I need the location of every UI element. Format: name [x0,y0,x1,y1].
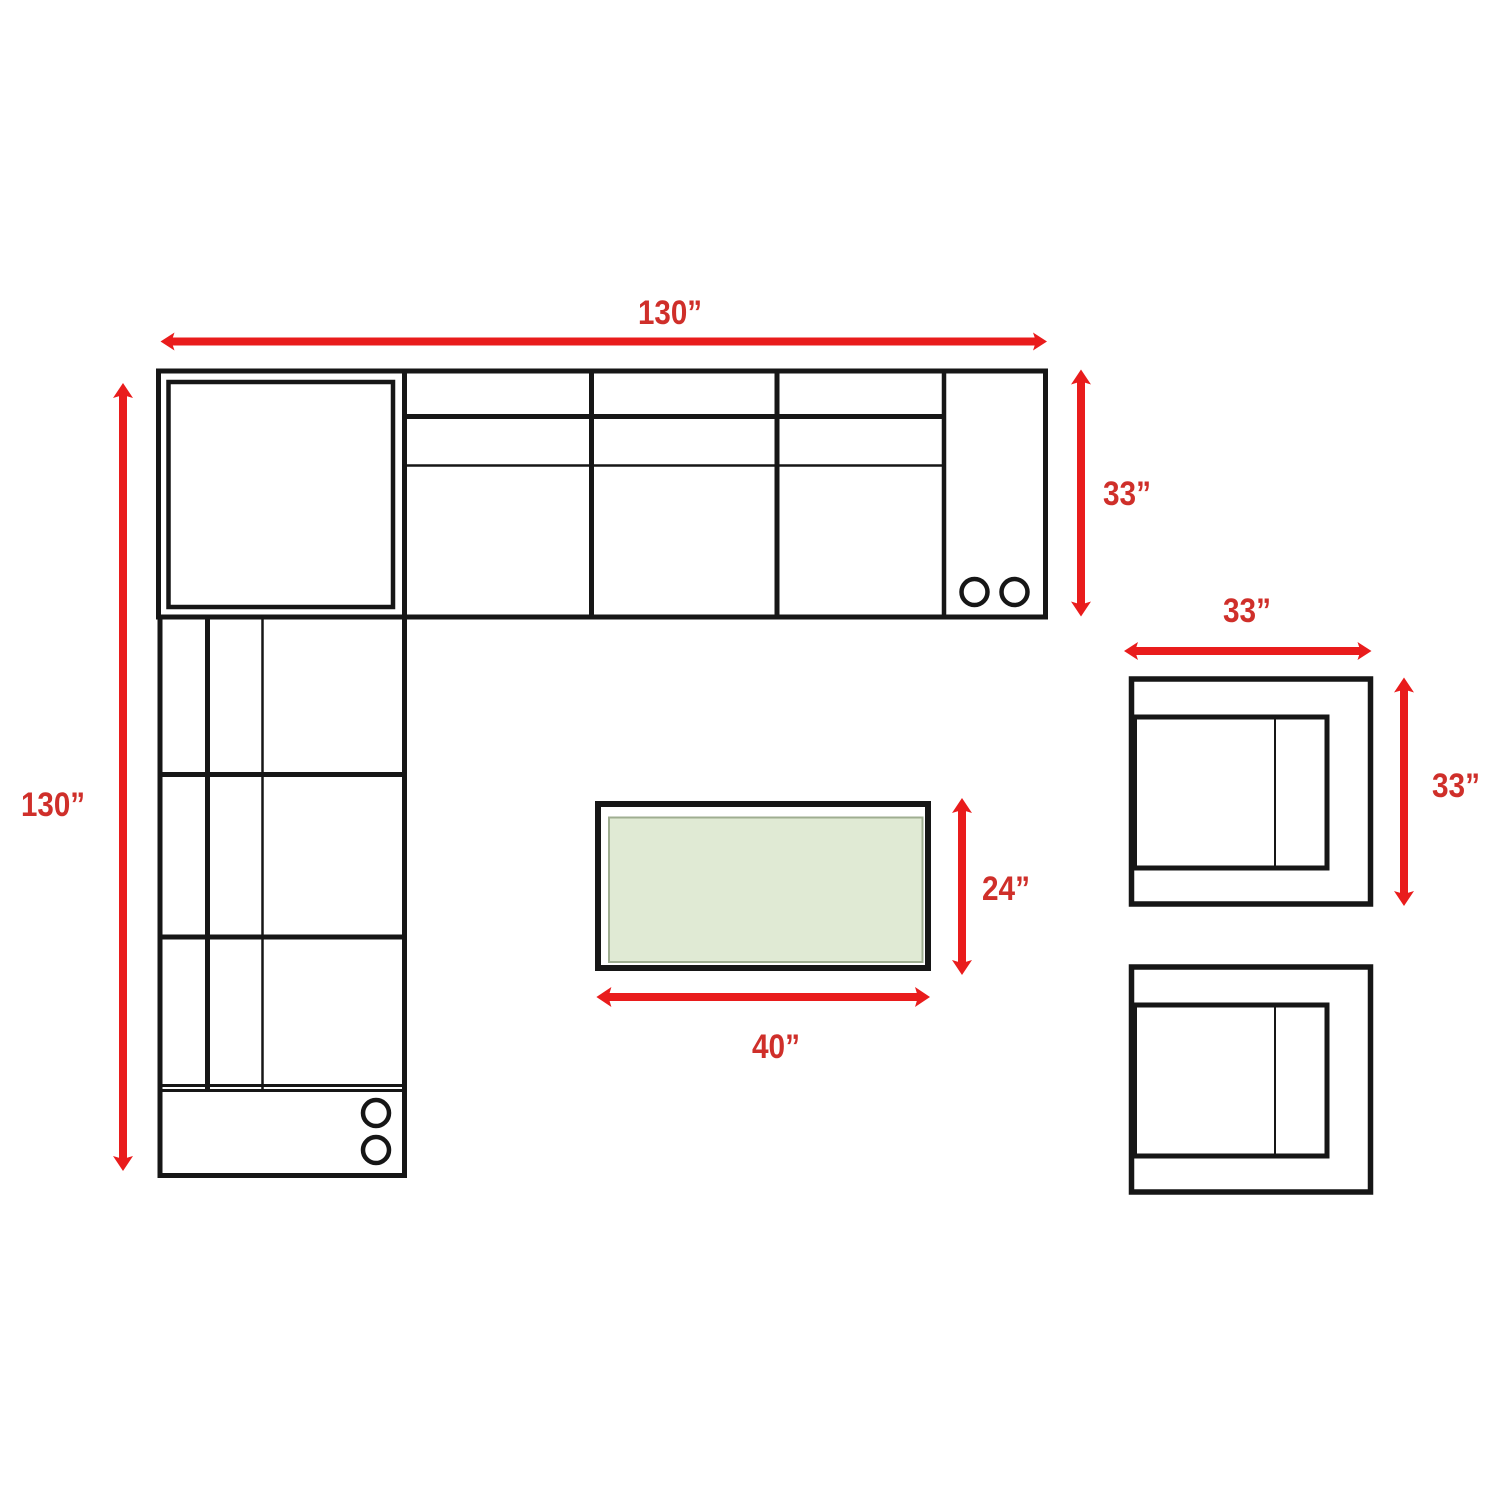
svg-text:40”: 40” [752,1028,800,1066]
svg-text:130”: 130” [638,294,702,332]
svg-text:33”: 33” [1103,475,1151,513]
svg-text:130”: 130” [21,786,85,824]
svg-text:33”: 33” [1223,592,1271,630]
svg-text:33”: 33” [1432,767,1480,805]
svg-text:24”: 24” [982,870,1030,908]
